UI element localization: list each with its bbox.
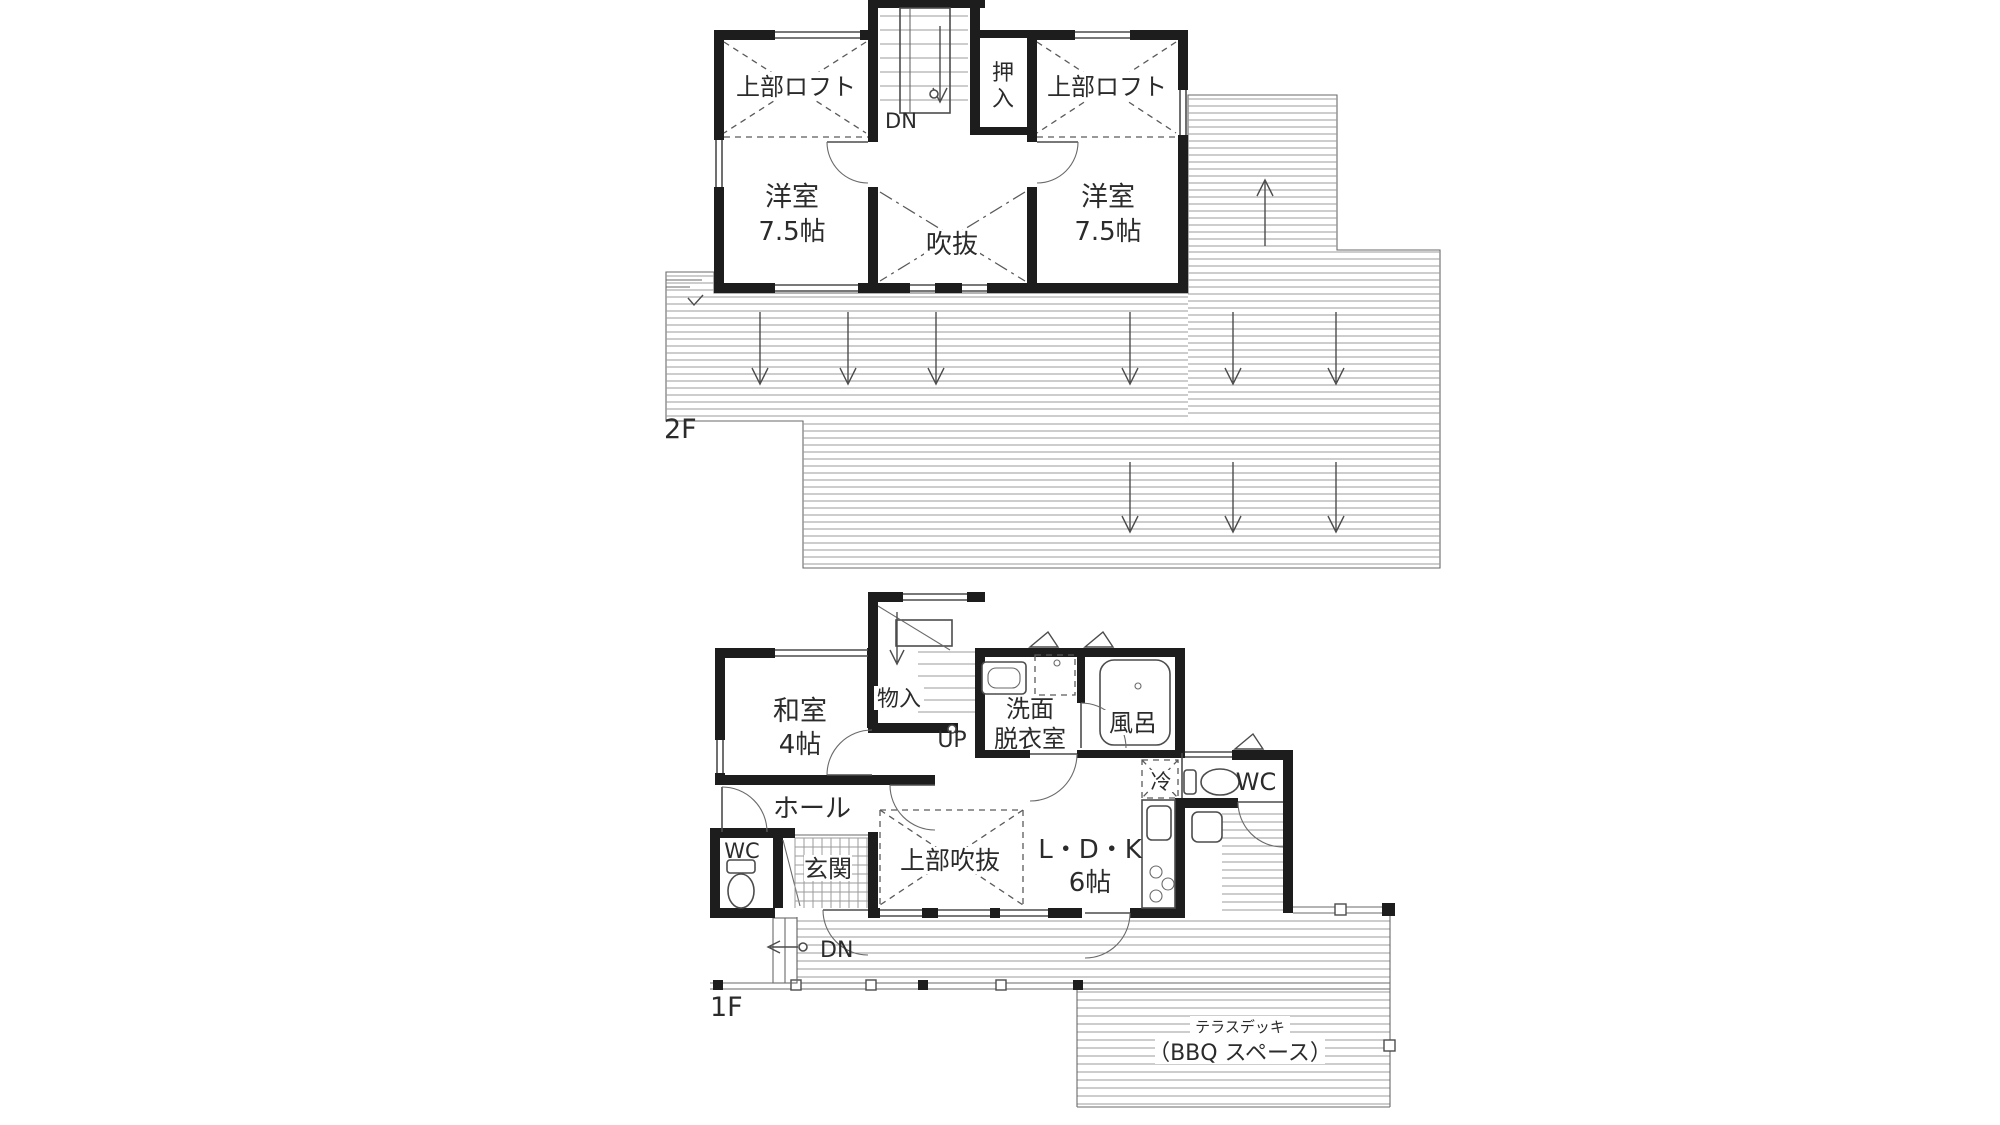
toilet-bowl-right — [1201, 769, 1239, 795]
floor1-stairs — [878, 606, 975, 733]
floor2-stairs — [880, 8, 968, 113]
floor2-title: 2F — [664, 414, 697, 445]
japanese-room-size: 4帖 — [779, 730, 822, 760]
floor1-plan: 和室 4帖 物入 UP 洗面 脱衣室 風呂 冷 WC ホール WC 玄関 上部吹… — [710, 592, 1395, 1107]
floor2-plan: 上部ロフト 洋室 7.5帖 DN 押 入 上部ロフト 洋室 7.5帖 吹抜 2F — [664, 0, 1440, 568]
floor-plan-page: 上部ロフト 洋室 7.5帖 DN 押 入 上部ロフト 洋室 7.5帖 吹抜 2F — [0, 0, 2000, 1125]
closet-label-char1: 押 — [992, 61, 1014, 86]
fridge-label: 冷 — [1151, 770, 1172, 794]
stairs-down-label-2f: DN — [885, 109, 917, 133]
kitchen-sink — [1147, 806, 1171, 840]
washroom-label-line1: 洗面 — [1006, 695, 1054, 723]
stove-burner — [1150, 866, 1162, 878]
floor2-doors — [827, 142, 1078, 183]
roof-arrows-down-row1 — [752, 312, 1344, 384]
closet-label-char2: 入 — [992, 87, 1014, 112]
void-label: 吹抜 — [926, 230, 978, 260]
stove-burner — [1150, 890, 1162, 902]
roof-hatch-e — [803, 424, 1440, 564]
loft-right-label: 上部ロフト — [1047, 73, 1167, 101]
loft-left-label: 上部ロフト — [736, 73, 856, 101]
void-above-label: 上部吹抜 — [900, 846, 1000, 875]
wc-left-label: WC — [724, 839, 759, 863]
western-room-right-size: 7.5帖 — [1074, 217, 1141, 247]
hand-basin — [1192, 812, 1222, 842]
japanese-room-name: 和室 — [773, 696, 827, 727]
wc-right-label: WC — [1236, 768, 1277, 796]
floor1-title: 1F — [710, 992, 743, 1023]
bath-label: 風呂 — [1109, 709, 1157, 737]
terrace-label-line2: （BBQ スペース） — [1148, 1041, 1332, 1066]
floor1-dn-arrow — [768, 941, 807, 953]
hall-label: ホール — [773, 794, 851, 824]
stairs-up-label: UP — [937, 728, 966, 753]
stairs-down-label-1f: DN — [820, 938, 853, 963]
roof-hatch-side — [1188, 99, 1337, 246]
washroom-label-line2: 脱衣室 — [994, 725, 1066, 753]
entry-closet-line — [783, 840, 800, 906]
side-steps-hatch — [1222, 814, 1283, 910]
western-room-left-size: 7.5帖 — [758, 217, 825, 247]
roof-arrow-up — [1257, 180, 1273, 246]
western-room-left-name: 洋室 — [765, 182, 819, 213]
roof-hatch-a — [666, 276, 714, 416]
roof-hatch-b — [714, 297, 1188, 416]
stove-burner — [1162, 878, 1174, 890]
floor-plan-canvas: 上部ロフト 洋室 7.5帖 DN 押 入 上部ロフト 洋室 7.5帖 吹抜 2F — [0, 0, 2000, 1125]
toilet-bowl-left — [728, 874, 754, 908]
western-room-right-name: 洋室 — [1081, 182, 1135, 213]
ldk-label-line2: 6帖 — [1069, 868, 1112, 898]
entrance-label: 玄関 — [804, 855, 852, 883]
roof-hatch-d — [1188, 252, 1440, 413]
toilet-tank-right — [1184, 770, 1196, 794]
washbasin-sink — [982, 662, 1026, 694]
ldk-label-line1: L・D・K — [1038, 835, 1143, 865]
storage-label: 物入 — [877, 687, 921, 712]
terrace-label-line1: テラスデッキ — [1195, 1018, 1285, 1036]
